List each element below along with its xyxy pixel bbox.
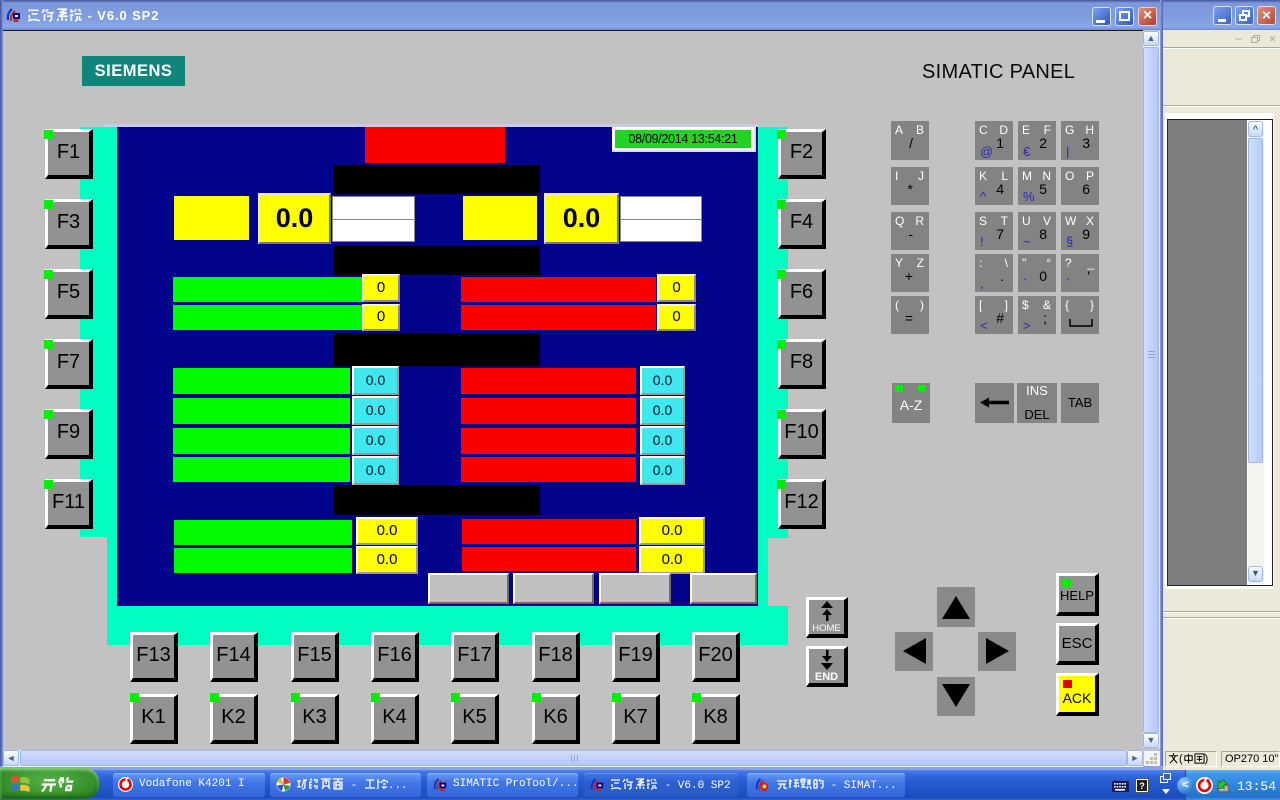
- svg-text:?: ?: [1139, 781, 1145, 791]
